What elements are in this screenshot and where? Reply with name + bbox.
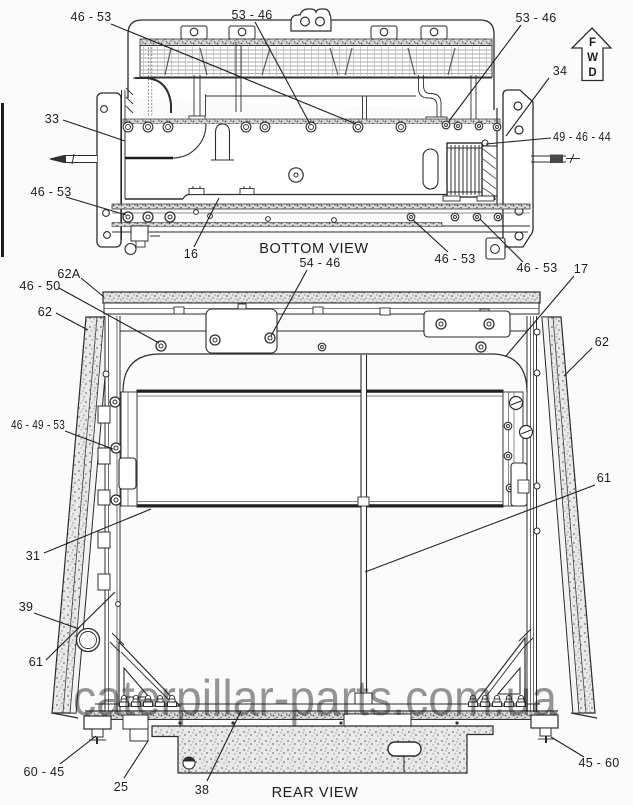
svg-text:F: F: [589, 37, 596, 49]
svg-text:49 - 46 - 44: 49 - 46 - 44: [553, 130, 611, 144]
svg-text:33: 33: [45, 112, 60, 126]
svg-text:39: 39: [19, 600, 34, 614]
svg-text:61: 61: [597, 471, 612, 485]
svg-text:62: 62: [595, 335, 610, 349]
svg-text:53 - 46: 53 - 46: [231, 8, 272, 22]
svg-text:46 - 53: 46 - 53: [30, 185, 71, 199]
svg-text:25: 25: [114, 780, 129, 794]
svg-text:46 - 49 - 53: 46 - 49 - 53: [11, 418, 65, 432]
svg-text:16: 16: [184, 247, 199, 261]
svg-text:BOTTOM VIEW: BOTTOM VIEW: [259, 241, 368, 257]
svg-text:W: W: [587, 52, 598, 64]
svg-text:46 - 50: 46 - 50: [19, 279, 60, 293]
svg-text:caterpillar-parts.com.ua: caterpillar-parts.com.ua: [73, 670, 557, 726]
svg-text:31: 31: [26, 549, 41, 563]
svg-text:62: 62: [38, 305, 53, 319]
svg-text:46 - 53: 46 - 53: [70, 10, 111, 24]
svg-text:38: 38: [195, 783, 210, 797]
svg-text:45 - 60: 45 - 60: [578, 756, 619, 770]
svg-text:17: 17: [574, 262, 589, 276]
svg-text:61: 61: [29, 655, 44, 669]
svg-text:34: 34: [553, 64, 568, 78]
svg-text:46 - 53: 46 - 53: [434, 252, 475, 266]
svg-text:53 - 46: 53 - 46: [515, 11, 556, 25]
svg-text:54 - 46: 54 - 46: [299, 256, 340, 270]
svg-text:46 - 53: 46 - 53: [516, 261, 557, 275]
svg-text:62A: 62A: [57, 267, 81, 281]
svg-text:60 - 45: 60 - 45: [23, 765, 64, 779]
svg-text:REAR VIEW: REAR VIEW: [272, 785, 359, 801]
svg-text:D: D: [588, 67, 596, 79]
